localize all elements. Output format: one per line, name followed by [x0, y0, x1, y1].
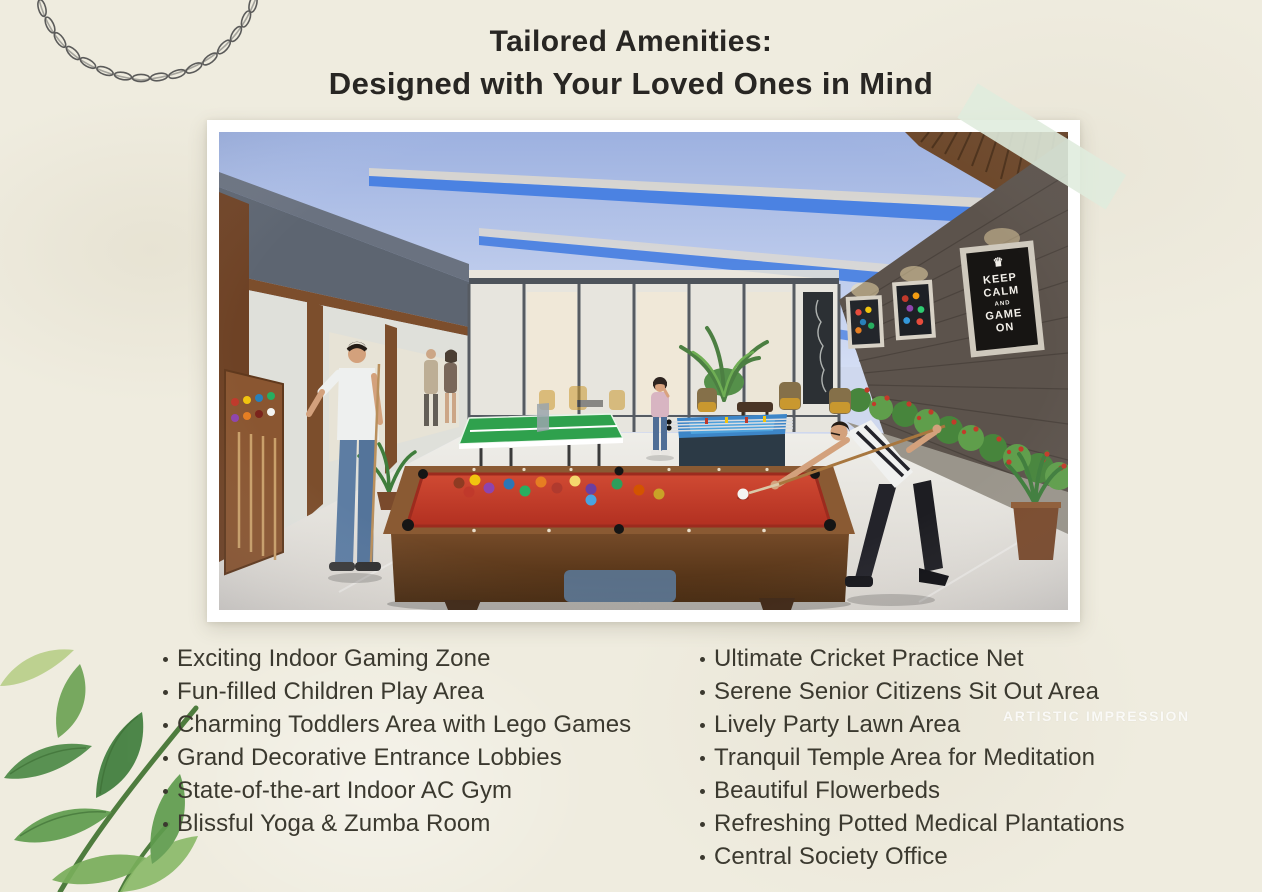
list-item: State-of-the-art Indoor AC Gym — [160, 774, 700, 807]
bullet-dot — [700, 756, 705, 761]
title-line-1: Tailored Amenities: — [0, 22, 1262, 62]
title-line-2: Designed with Your Loved Ones in Mind — [0, 62, 1262, 106]
bullet-dot — [163, 723, 168, 728]
amenity-label: Charming Toddlers Area with Lego Games — [177, 708, 631, 741]
amenity-label: Blissful Yoga & Zumba Room — [177, 807, 490, 840]
bullet-dot — [700, 789, 705, 794]
gaming-zone-rendering: ♛ KEEP CALM AND GAME ON — [219, 132, 1068, 610]
brochure-page: Tailored Amenities: Designed with Your L… — [0, 0, 1262, 892]
bullet-dot — [700, 657, 705, 662]
amenities-photo: ♛ KEEP CALM AND GAME ON — [207, 120, 1080, 622]
amenity-label: Grand Decorative Entrance Lobbies — [177, 741, 562, 774]
bullet-dot — [700, 855, 705, 860]
bullet-dot — [163, 756, 168, 761]
amenity-label: Tranquil Temple Area for Meditation — [714, 741, 1095, 774]
amenity-label: Fun-filled Children Play Area — [177, 675, 484, 708]
amenities-list-right: Ultimate Cricket Practice Net Serene Sen… — [697, 642, 1227, 873]
bullet-dot — [163, 690, 168, 695]
bullet-dot — [163, 789, 168, 794]
bullet-dot — [700, 822, 705, 827]
bullet-dot — [163, 822, 168, 827]
list-item: Serene Senior Citizens Sit Out Area — [697, 675, 1227, 708]
list-item: Lively Party Lawn Area — [697, 708, 1227, 741]
list-item: Grand Decorative Entrance Lobbies — [160, 741, 700, 774]
amenity-label: Serene Senior Citizens Sit Out Area — [714, 675, 1099, 708]
list-item: Exciting Indoor Gaming Zone — [160, 642, 700, 675]
list-item: Beautiful Flowerbeds — [697, 774, 1227, 807]
list-item: Fun-filled Children Play Area — [160, 675, 700, 708]
amenity-label: Refreshing Potted Medical Plantations — [714, 807, 1125, 840]
amenity-label: Ultimate Cricket Practice Net — [714, 642, 1024, 675]
amenity-label: State-of-the-art Indoor AC Gym — [177, 774, 512, 807]
page-title: Tailored Amenities: Designed with Your L… — [0, 22, 1262, 106]
list-item: Ultimate Cricket Practice Net — [697, 642, 1227, 675]
bullet-dot — [700, 723, 705, 728]
amenities-list-left: Exciting Indoor Gaming Zone Fun-filled C… — [160, 642, 700, 840]
bullet-dot — [163, 657, 168, 662]
list-item: Tranquil Temple Area for Meditation — [697, 741, 1227, 774]
amenity-label: Exciting Indoor Gaming Zone — [177, 642, 491, 675]
amenity-label: Lively Party Lawn Area — [714, 708, 960, 741]
list-item: Blissful Yoga & Zumba Room — [160, 807, 700, 840]
list-item: Refreshing Potted Medical Plantations — [697, 807, 1227, 840]
list-item: Charming Toddlers Area with Lego Games — [160, 708, 700, 741]
vignette — [219, 132, 1068, 610]
list-item: Central Society Office — [697, 840, 1227, 873]
amenity-label: Central Society Office — [714, 840, 948, 873]
bullet-dot — [700, 690, 705, 695]
amenity-label: Beautiful Flowerbeds — [714, 774, 940, 807]
